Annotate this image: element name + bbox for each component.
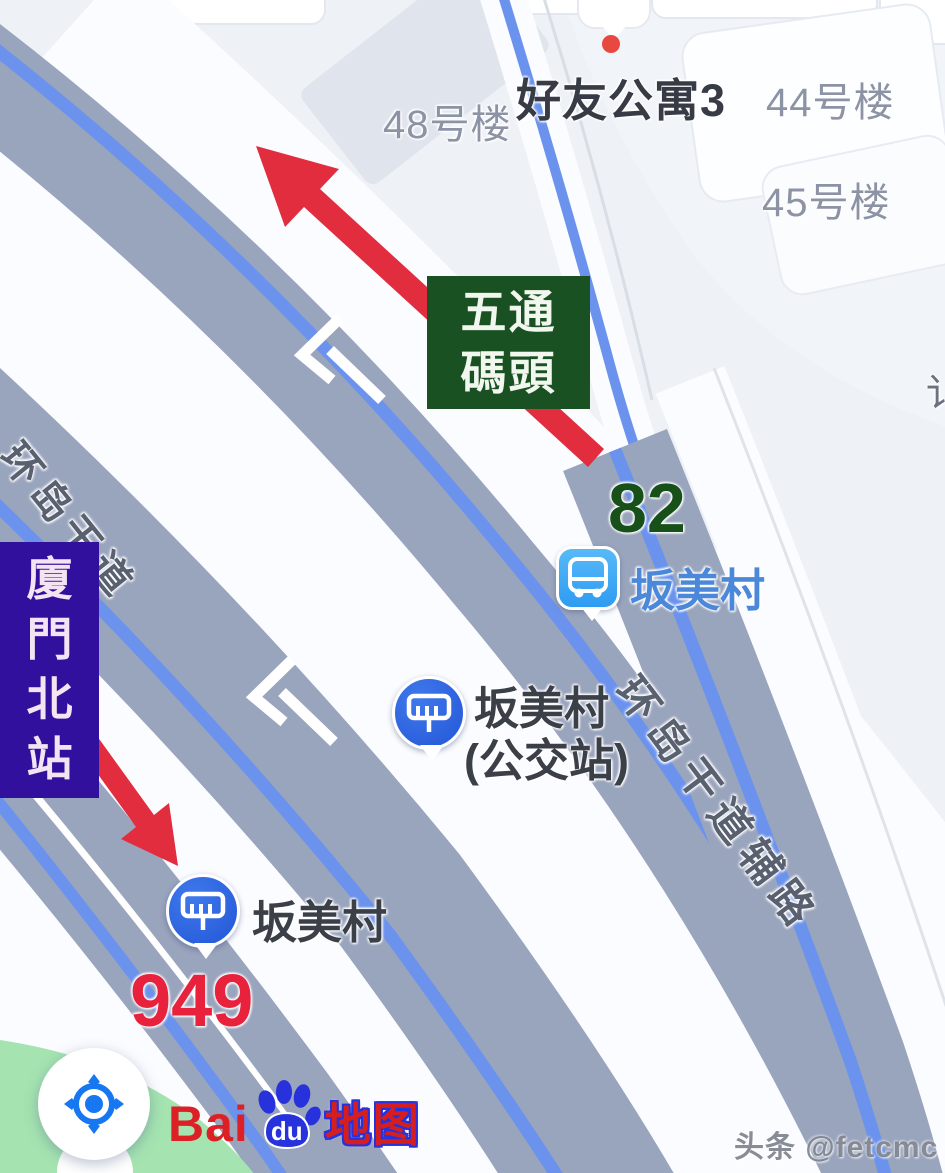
station-char-1: 廈	[27, 550, 73, 610]
baidu-maps-logo: Bai du 地图	[168, 1084, 421, 1154]
route-number-949: 949	[130, 958, 253, 1043]
building-label-44: 44号楼	[766, 70, 895, 128]
baidu-paw-icon: du	[251, 1080, 323, 1154]
stop-label-west[interactable]: 坂美村	[252, 886, 387, 951]
bus-stop-sign-glyph-icon	[395, 679, 463, 747]
baidu-du-text: du	[271, 1116, 303, 1147]
station-char-4: 站	[27, 730, 73, 790]
baidu-ditu-text: 地图	[325, 1096, 421, 1154]
annotation-station-box: 廈 門 北 站	[0, 542, 99, 798]
edge-partial-label: 讠	[926, 362, 945, 417]
building-label-48: 48号楼	[383, 92, 512, 150]
locate-button[interactable]	[38, 1048, 150, 1160]
bus-stop-icon-middle[interactable]	[392, 676, 466, 750]
marker-dot-icon	[602, 35, 620, 53]
station-char-3: 北	[27, 670, 73, 730]
bus-route-icon[interactable]	[556, 546, 620, 610]
locate-icon	[62, 1072, 126, 1136]
station-char-2: 門	[27, 610, 73, 670]
route-number-82: 82	[608, 468, 686, 548]
pier-line-2: 碼頭	[461, 343, 557, 404]
stop-label-east[interactable]: 坂美村	[630, 554, 765, 619]
baidu-logo-text: Bai	[168, 1094, 249, 1154]
pier-line-1: 五通	[461, 282, 557, 343]
bus-glyph-icon	[559, 549, 617, 607]
map-viewport[interactable]: 48号楼 好友公寓3 44号楼 45号楼 讠 环岛干道 环岛干道辅路 五通 碼頭…	[0, 0, 945, 1173]
bus-stop-icon-west[interactable]	[166, 874, 240, 948]
building-label-45: 45号楼	[762, 170, 891, 228]
annotation-pier-box: 五通 碼頭	[427, 276, 590, 409]
building-label-haoyou: 好友公寓3	[516, 64, 726, 129]
stop-label-middle-line2[interactable]: (公交站)	[464, 724, 629, 789]
watermark: 头条 @fetcmc	[734, 1122, 938, 1166]
bus-stop-sign-glyph-icon	[169, 877, 237, 945]
